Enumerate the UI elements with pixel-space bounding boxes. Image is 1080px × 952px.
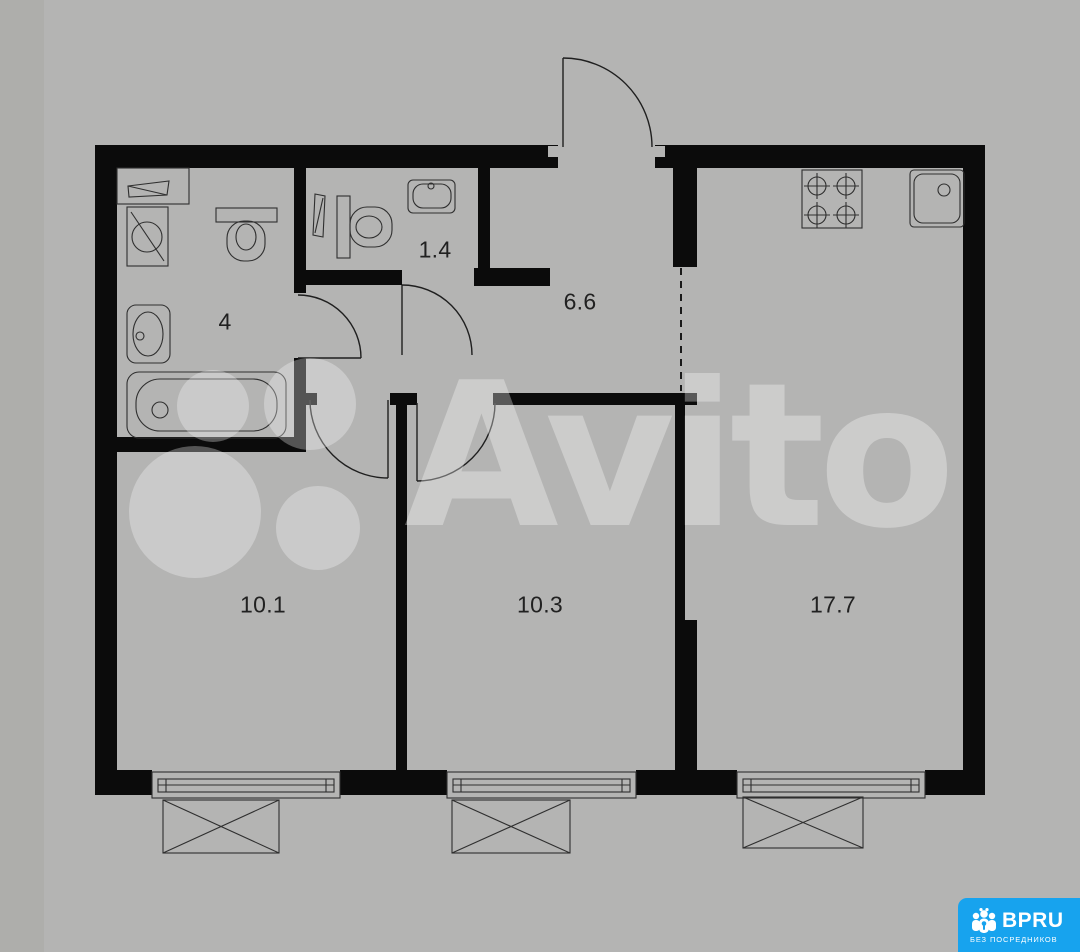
room-left-door-icon [310,400,388,478]
washing-machine-icon [127,207,168,266]
wc-door-icon [402,285,472,355]
room-middle-door-icon [417,403,495,481]
bpru-brand-text: BPRU [1002,910,1064,931]
floor-plan-page: Avito 4 1.4 6.6 10.1 10.3 17.7 [0,0,1080,952]
stove-icon [802,170,862,228]
wc-panel-icon [313,194,325,237]
bpru-people-icon [970,907,998,934]
walls [95,145,985,795]
toilet-icon [216,208,277,261]
window-icon [447,772,636,853]
room-area-label-kitchen: 17.7 [810,592,856,619]
room-area-label-room-middle: 10.3 [517,592,563,619]
door-jamb-notches [548,146,665,157]
window-icon [152,772,340,853]
wc-toilet-icon [337,196,392,258]
bpru-tagline-text: БЕЗ ПОСРЕДНИКОВ [970,936,1080,944]
bpru-badge: BPRU БЕЗ ПОСРЕДНИКОВ [958,898,1080,952]
entrance-door-icon [563,58,652,147]
windows [152,772,925,853]
bathtub-icon [127,372,286,438]
room-area-label-room-left: 10.1 [240,592,286,619]
room-area-label-bathroom: 4 [218,309,231,336]
bathroom-door-icon [298,295,361,358]
room-area-label-wc: 1.4 [419,237,452,264]
floor-plan-drawing [0,0,1080,952]
room-area-label-hallway: 6.6 [564,289,597,316]
wc-sink-icon [408,180,455,213]
window-icon [737,772,925,848]
kitchen-sink-icon [910,170,964,227]
shelf-icon [117,168,189,204]
wash-basin-icon [127,305,170,363]
